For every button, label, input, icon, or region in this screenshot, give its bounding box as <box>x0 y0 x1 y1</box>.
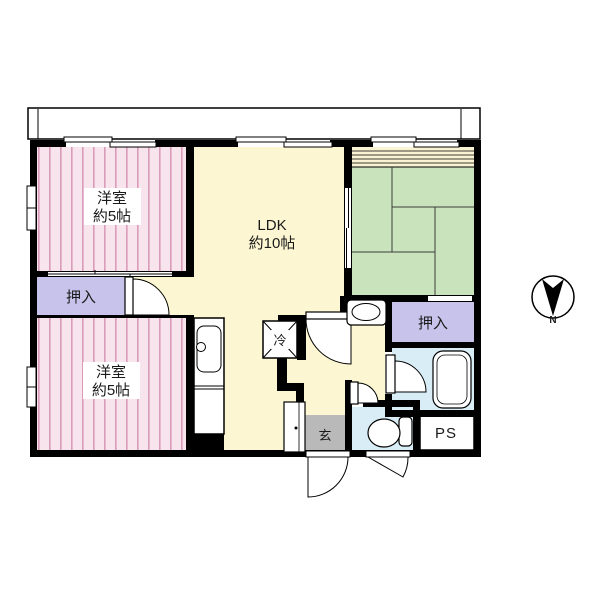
shoe-cabinet <box>284 402 305 452</box>
engawa-strip <box>352 147 474 167</box>
balcony <box>28 108 480 139</box>
refrigerator-label: 冷 <box>273 333 286 348</box>
floor-plan: N 洋室 約5帖 洋室 約5帖 LDK 約10帖 押入 押入 冷 玄 PS <box>0 0 600 600</box>
closet2-label: 押入 <box>418 315 448 332</box>
basin-icon <box>352 304 380 321</box>
bedroom1-name: 洋室 <box>97 190 127 207</box>
bedroom2-name: 洋室 <box>96 364 126 381</box>
bathtub <box>433 351 471 408</box>
pipe-space-label: PS <box>435 425 457 442</box>
compass-north-label: N <box>549 315 556 326</box>
bedroom1-size: 約5帖 <box>93 208 131 225</box>
entrance-label: 玄 <box>318 428 331 443</box>
window-icon <box>64 137 112 142</box>
ldk-size: 約10帖 <box>249 235 296 252</box>
toilet-bowl-icon <box>368 419 400 447</box>
toilet-tank-icon <box>399 417 412 446</box>
washbasin <box>347 300 386 325</box>
toilet-fixture <box>368 417 412 447</box>
bedroom2-size: 約5帖 <box>92 382 130 399</box>
tatami-room <box>352 147 474 295</box>
ldk-name: LDK <box>257 217 286 234</box>
closet1-label: 押入 <box>66 289 96 306</box>
kitchen-unit <box>194 318 224 434</box>
faucet-icon <box>197 343 206 352</box>
